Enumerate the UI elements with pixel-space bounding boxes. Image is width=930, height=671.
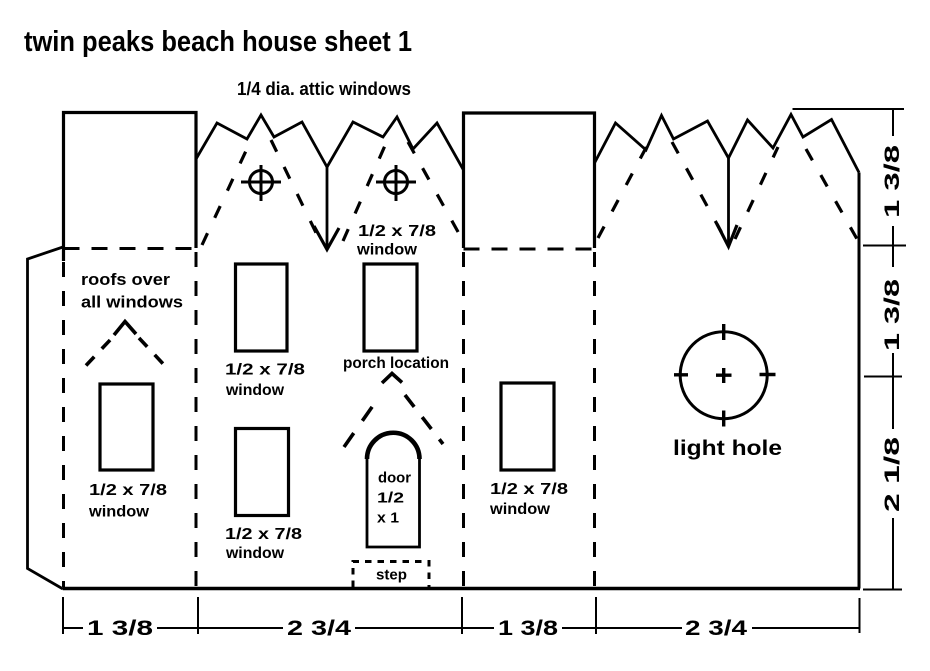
svg-text:1/2 x 7/8: 1/2 x 7/8 <box>225 526 302 543</box>
svg-text:1/2 x 7/8: 1/2 x 7/8 <box>490 481 568 498</box>
svg-text:1/2 x 7/8: 1/2 x 7/8 <box>225 362 305 379</box>
svg-text:window: window <box>225 545 285 562</box>
svg-text:1 3/8: 1 3/8 <box>87 617 153 640</box>
svg-text:window: window <box>88 504 150 521</box>
svg-text:2 1/8: 2 1/8 <box>881 437 904 512</box>
svg-text:porch location: porch location <box>343 355 449 372</box>
svg-text:window: window <box>225 382 285 399</box>
svg-text:2 3/4: 2 3/4 <box>287 617 351 640</box>
svg-text:1/2 x 7/8: 1/2 x 7/8 <box>358 223 436 240</box>
svg-text:twin peaks beach house sheet 1: twin peaks beach house sheet 1 <box>24 26 412 58</box>
svg-text:2 3/4: 2 3/4 <box>685 617 747 640</box>
svg-text:1/2 x 7/8: 1/2 x 7/8 <box>89 482 167 499</box>
svg-text:x 1: x 1 <box>377 510 399 527</box>
svg-text:all windows: all windows <box>81 293 183 312</box>
svg-text:1 3/8: 1 3/8 <box>881 145 904 218</box>
svg-text:window: window <box>356 242 418 259</box>
svg-text:light hole: light hole <box>673 437 782 460</box>
svg-text:1/2: 1/2 <box>377 490 404 507</box>
svg-text:1 3/8: 1 3/8 <box>881 279 904 351</box>
svg-text:1 3/8: 1 3/8 <box>498 617 558 640</box>
svg-text:roofs over: roofs over <box>81 270 170 289</box>
svg-text:1/4 dia. attic windows: 1/4 dia. attic windows <box>237 79 411 99</box>
svg-text:step: step <box>376 567 407 584</box>
svg-text:window: window <box>489 501 551 518</box>
svg-text:door: door <box>378 470 411 487</box>
